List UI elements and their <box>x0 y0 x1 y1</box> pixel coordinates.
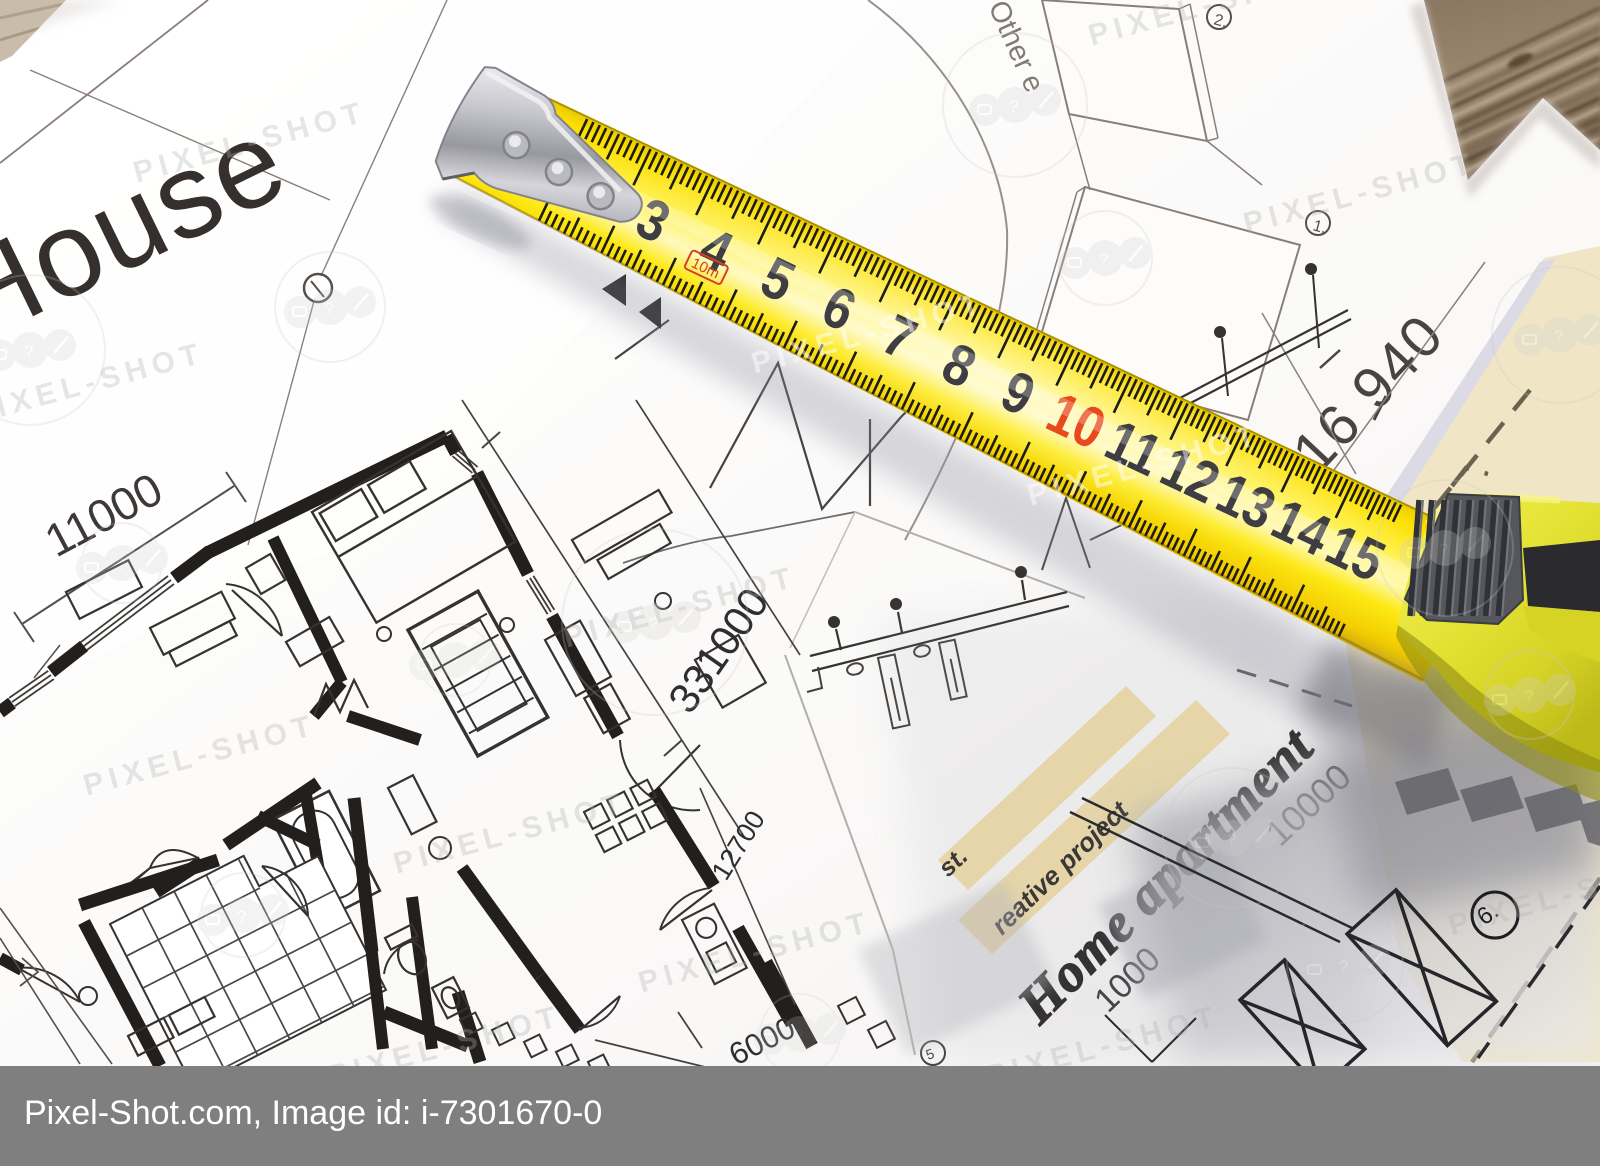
svg-text:Pixel-Shot.com, Image id: i-73: Pixel-Shot.com, Image id: i-7301670-0 <box>24 1094 602 1132</box>
